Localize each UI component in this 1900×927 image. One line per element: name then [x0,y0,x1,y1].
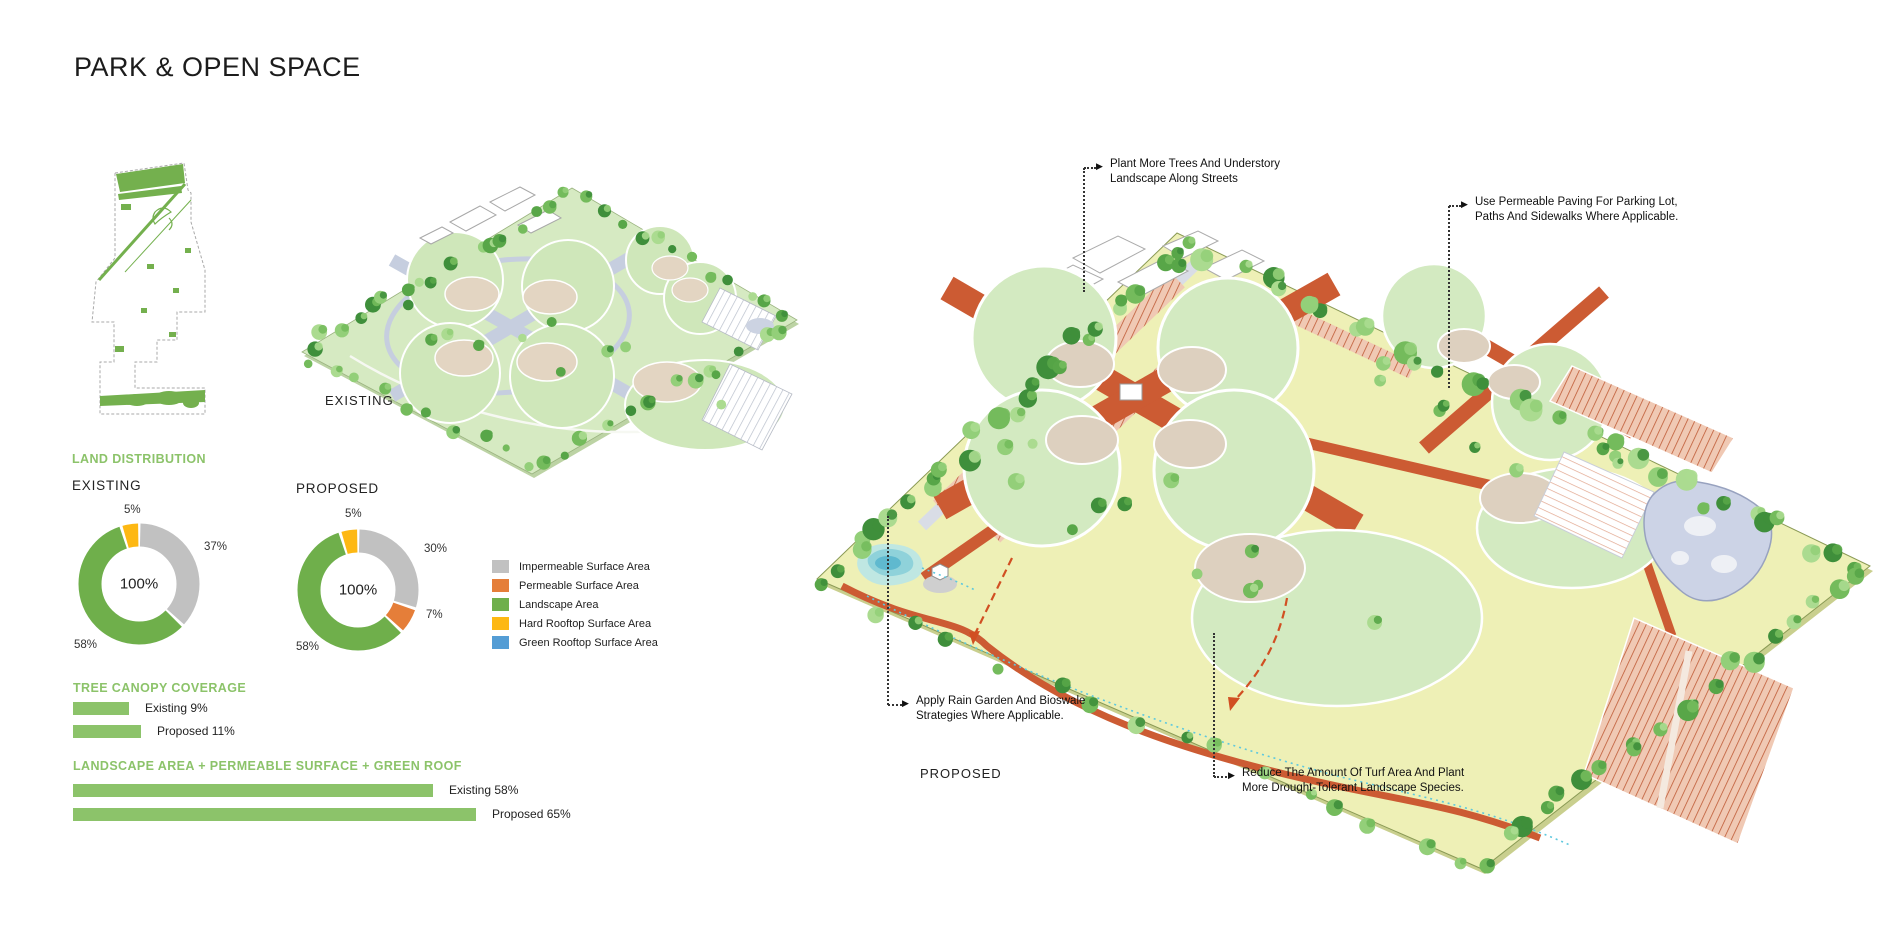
greenway-lines [99,184,191,280]
annotation-rain-garden: Apply Rain Garden And Bioswale Strategie… [916,694,1085,724]
legend-item: Green Rooftop Surface Area [492,633,658,652]
proposed-permeable-pct: 7% [426,609,443,621]
bar-label: Proposed 65% [492,808,571,821]
existing-park-plan [290,168,805,483]
bar-fill [73,725,141,738]
existing-hard-rooftop-pct: 5% [124,504,141,516]
legend-swatch [492,579,509,592]
bar-label: Proposed 11% [157,725,235,738]
leader-line [1448,206,1450,388]
leader-line [1083,168,1085,292]
proposed-landscape-pct: 58% [296,641,319,653]
annotation-arrow-icon: ▶ [1461,199,1468,210]
land-distribution-heading: LAND DISTRIBUTION [72,452,206,466]
bar-label: Existing 9% [145,702,208,715]
leader-line [1214,776,1227,778]
legend-swatch [492,617,509,630]
donut-existing-label: EXISTING [72,478,141,493]
legend-item: Impermeable Surface Area [492,557,658,576]
legend-swatch [492,598,509,611]
bar-fill [73,808,476,821]
annotation-plant-trees: Plant More Trees And Understory Landscap… [1110,157,1280,187]
existing-landscape-pct: 58% [74,639,97,651]
tree-canopy-heading: TREE CANOPY COVERAGE [73,681,246,695]
leader-line [1449,205,1461,207]
green-space-patches [100,164,205,408]
legend-item: Hard Rooftop Surface Area [492,614,658,633]
bar-fill [73,702,129,715]
central-pavilion [1120,384,1142,400]
surface-legend: Impermeable Surface AreaPermeable Surfac… [492,557,658,652]
legend-swatch [492,560,509,573]
donut-proposed-label: PROPOSED [296,481,379,496]
annotation-arrow-icon: ▶ [902,698,909,709]
annotation-reduce-turf: Reduce The Amount Of Turf Area And Plant… [1242,766,1464,796]
existing-impermeable-pct: 37% [204,541,227,553]
landscape-combined-heading: LANDSCAPE AREA + PERMEABLE SURFACE + GRE… [73,759,462,773]
annotation-arrow-icon: ▶ [1228,770,1235,781]
legend-label: Hard Rooftop Surface Area [519,618,651,630]
proposed-plan-label: PROPOSED [920,766,1002,781]
bar-row: Proposed 65% [73,808,773,821]
existing-plan-label: EXISTING [325,393,394,408]
leader-line [888,704,902,706]
leader-line [1213,633,1215,777]
proposed-impermeable-pct: 30% [424,543,447,555]
bar-label: Existing 58% [449,784,518,797]
legend-label: Permeable Surface Area [519,580,639,592]
site-location-map [85,160,233,428]
proposed-donut-center: 100% [339,582,377,599]
bar-row: Existing 9% [73,702,773,715]
legend-item: Landscape Area [492,595,658,614]
legend-swatch [492,636,509,649]
bar-fill [73,784,433,797]
legend-label: Landscape Area [519,599,599,611]
page-title: PARK & OPEN SPACE [74,52,361,83]
leader-line [1084,167,1096,169]
district-boundary [92,163,205,414]
proposed-hard-rooftop-pct: 5% [345,508,362,520]
annotation-arrow-icon: ▶ [1096,161,1103,172]
leader-line [887,516,889,705]
existing-donut-center: 100% [120,576,158,593]
presentation-board: PARK & OPEN SPACE [0,0,1900,927]
bar-row: Proposed 11% [73,725,773,738]
annotation-permeable-paving: Use Permeable Paving For Parking Lot, Pa… [1475,195,1678,225]
legend-item: Permeable Surface Area [492,576,658,595]
bar-row: Existing 58% [73,784,773,797]
legend-label: Impermeable Surface Area [519,561,650,573]
legend-label: Green Rooftop Surface Area [519,637,658,649]
